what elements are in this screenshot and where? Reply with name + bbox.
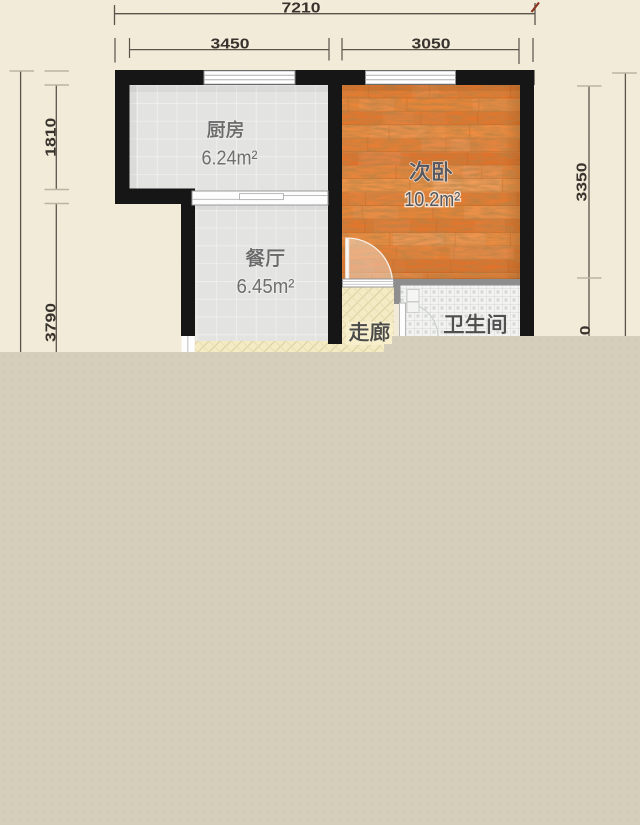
svg-text:6.24m²: 6.24m² — [202, 148, 258, 170]
svg-text:7210: 7210 — [282, 1, 321, 17]
svg-text:1810: 1810 — [43, 118, 59, 157]
svg-text:3350: 3350 — [574, 163, 590, 202]
svg-text:3450: 3450 — [211, 36, 250, 52]
svg-text:3790: 3790 — [43, 303, 59, 342]
svg-text:6.45m²: 6.45m² — [237, 276, 295, 298]
svg-text:3050: 3050 — [412, 36, 451, 52]
svg-text:10.2m²: 10.2m² — [404, 189, 460, 211]
